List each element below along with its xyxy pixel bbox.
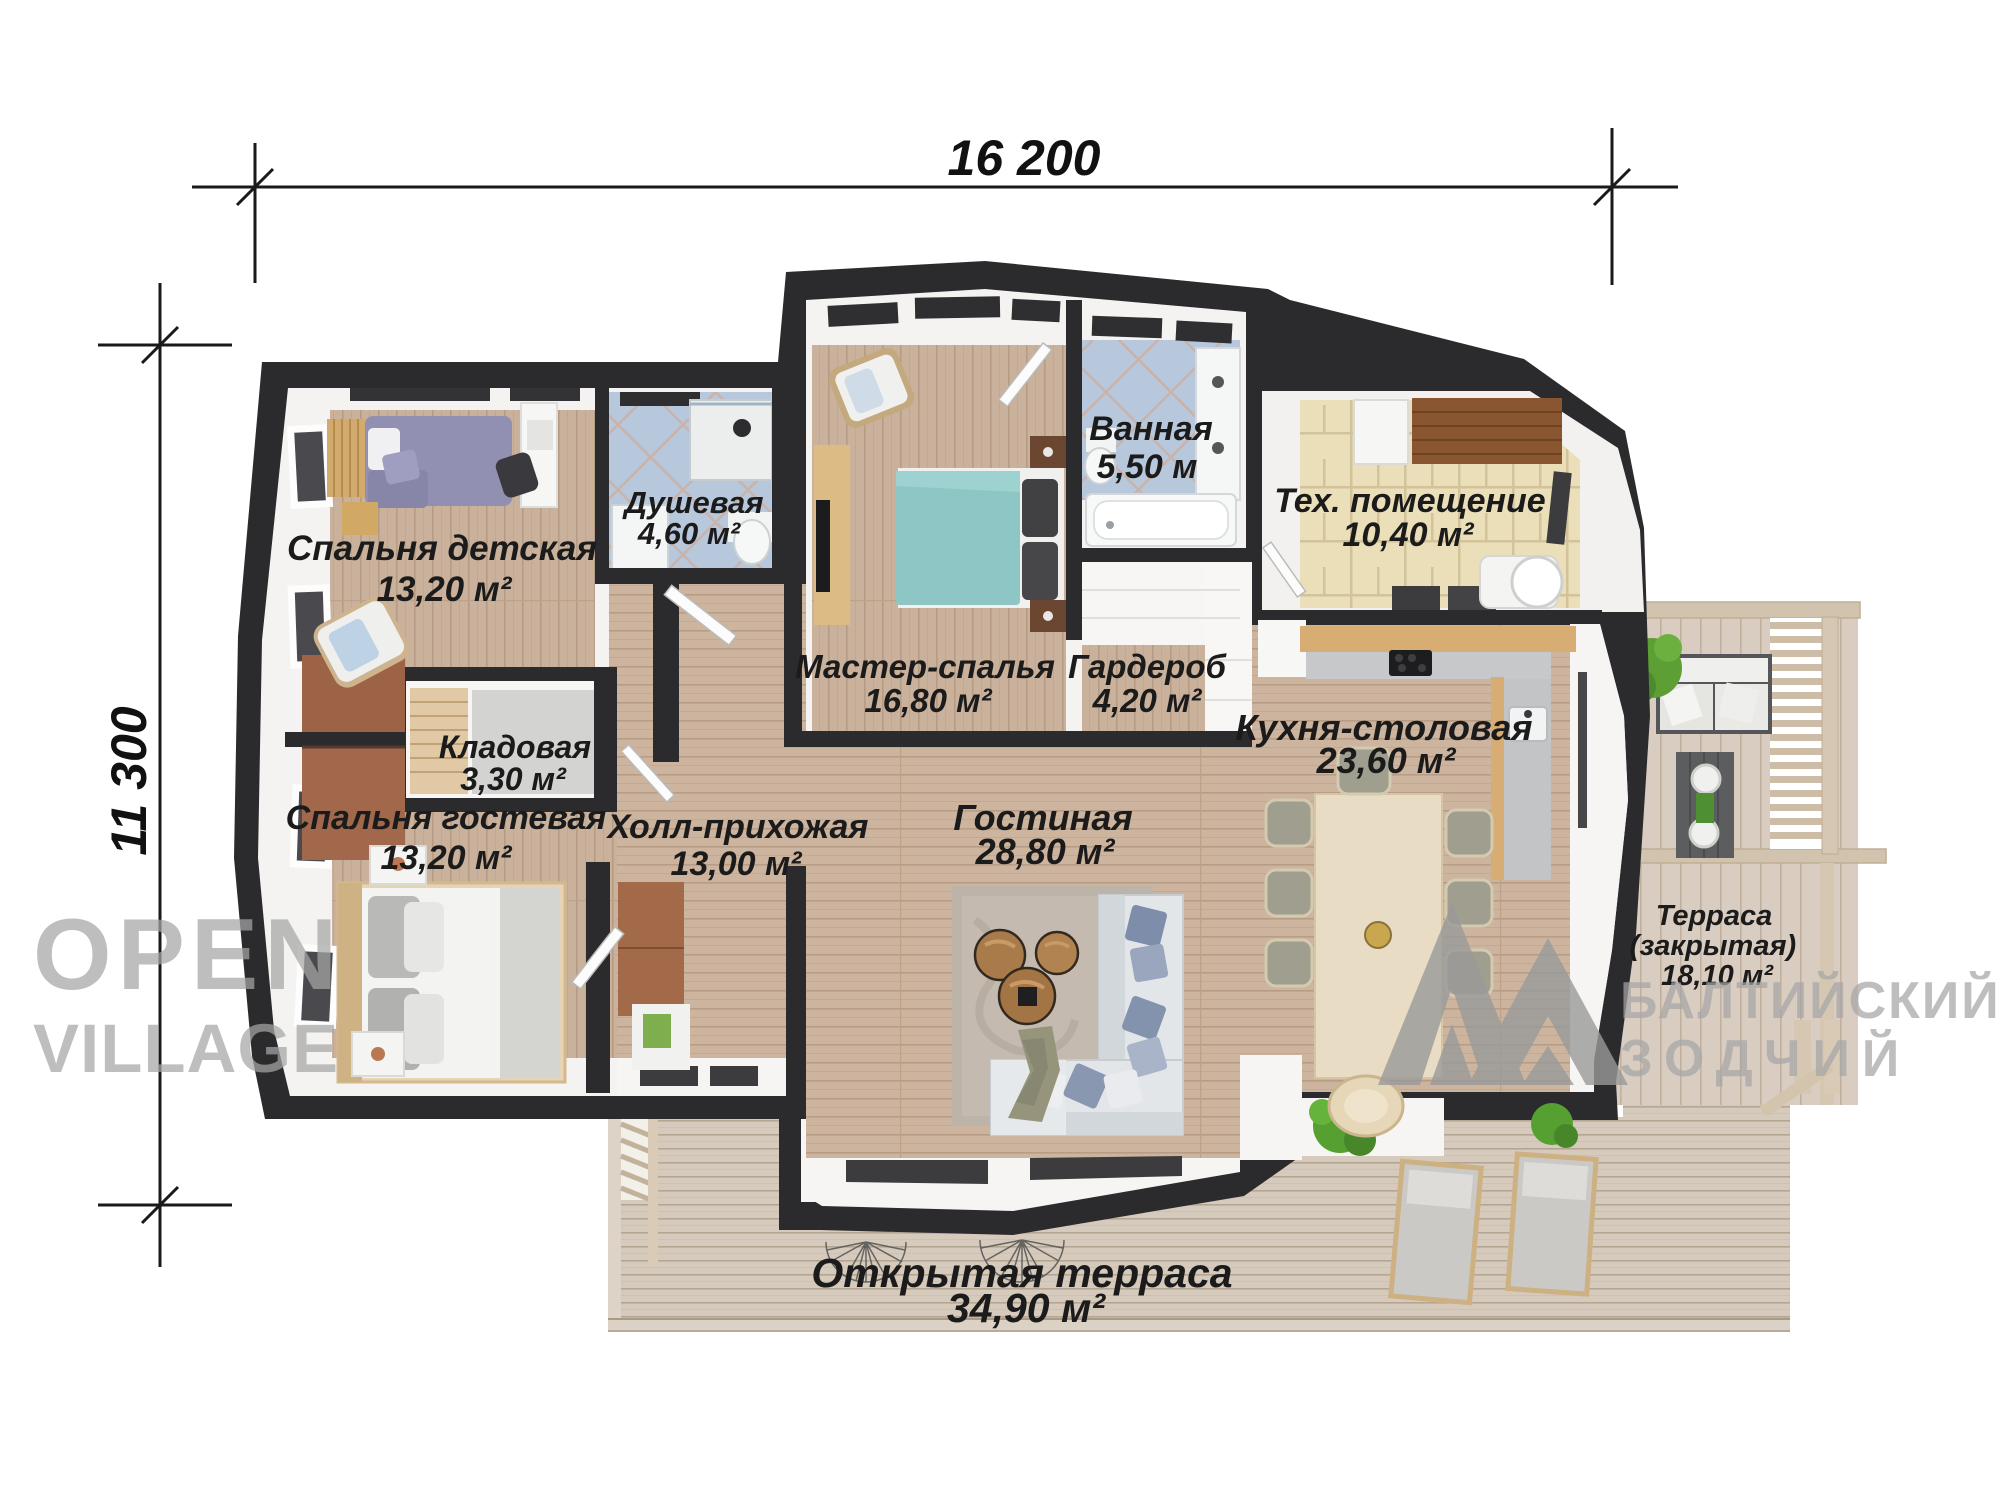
- svg-text:Спальня гостевая: Спальня гостевая: [286, 799, 607, 837]
- svg-text:34,90 м²: 34,90 м²: [947, 1285, 1106, 1331]
- svg-text:4,20 м²: 4,20 м²: [1092, 682, 1203, 719]
- svg-text:ЗОДЧИЙ: ЗОДЧИЙ: [1620, 1029, 1911, 1088]
- svg-text:16 200: 16 200: [948, 130, 1101, 186]
- svg-text:13,20 м²: 13,20 м²: [380, 839, 513, 877]
- svg-text:13,00 м²: 13,00 м²: [670, 845, 803, 883]
- svg-text:Душевая: Душевая: [621, 485, 763, 520]
- svg-text:Кладовая: Кладовая: [439, 729, 591, 765]
- svg-text:OPEN: OPEN: [33, 899, 343, 1011]
- svg-text:23,60 м²: 23,60 м²: [1316, 740, 1457, 781]
- svg-text:28,80 м²: 28,80 м²: [975, 831, 1116, 872]
- svg-text:Гардероб: Гардероб: [1068, 648, 1227, 685]
- svg-text:Спальня детская: Спальня детская: [287, 529, 597, 568]
- svg-text:3,30 м²: 3,30 м²: [460, 761, 567, 797]
- svg-text:Терраса: Терраса: [1656, 900, 1773, 932]
- svg-text:16,80 м²: 16,80 м²: [864, 682, 992, 719]
- svg-text:VILLAGE: VILLAGE: [33, 1010, 339, 1087]
- svg-text:Тех. помещение: Тех. помещение: [1274, 482, 1545, 520]
- svg-text:11 300: 11 300: [101, 706, 157, 855]
- svg-text:Мастер-спалья: Мастер-спалья: [795, 648, 1055, 685]
- svg-text:4,60 м²: 4,60 м²: [637, 516, 741, 551]
- svg-text:Ванная: Ванная: [1089, 410, 1212, 448]
- svg-text:БАЛТИЙСКИЙ: БАЛТИЙСКИЙ: [1620, 971, 2000, 1030]
- svg-text:5,50 м: 5,50 м: [1097, 448, 1198, 486]
- svg-text:(закрытая): (закрытая): [1630, 930, 1796, 962]
- svg-text:10,40 м²: 10,40 м²: [1342, 516, 1475, 554]
- svg-text:13,20 м²: 13,20 м²: [377, 570, 513, 609]
- svg-text:Холл-прихожая: Холл-прихожая: [606, 808, 869, 846]
